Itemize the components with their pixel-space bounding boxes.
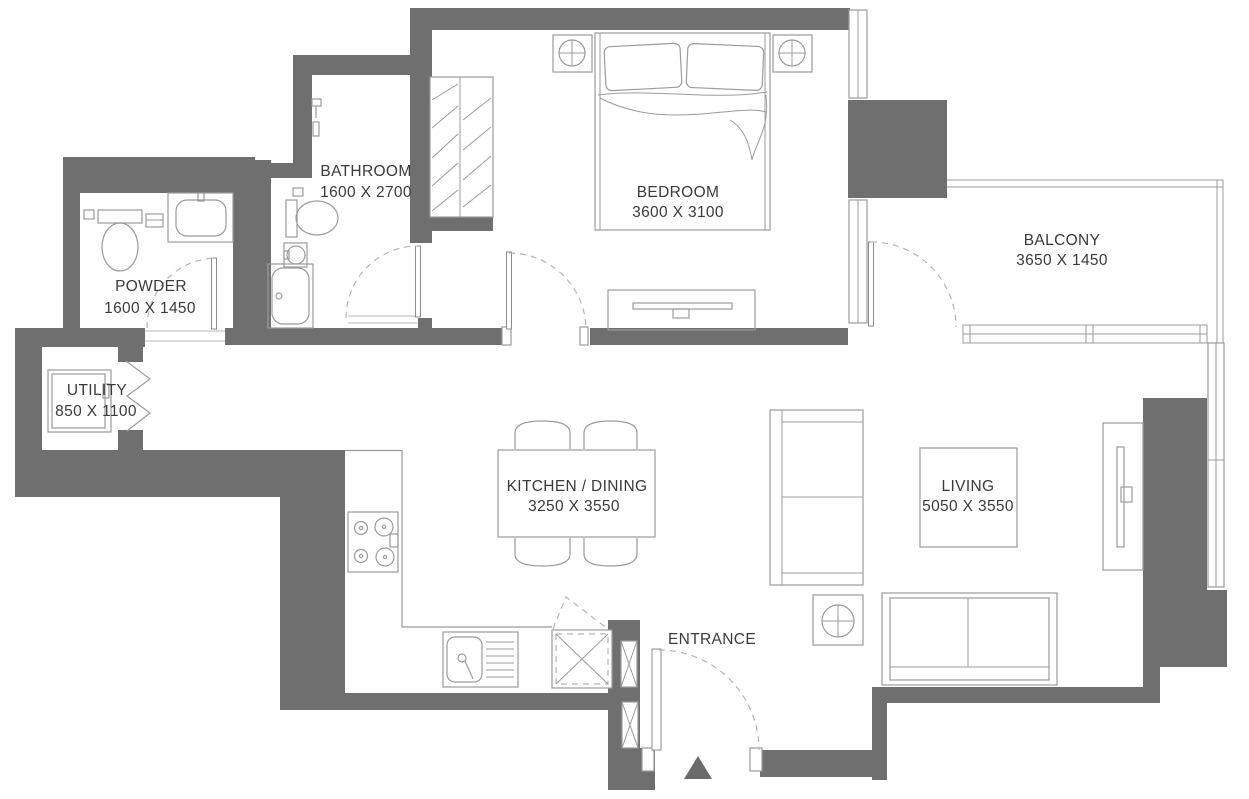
window-living-east [1208,343,1224,587]
utility-bifold-door [126,361,150,431]
utility-dimensions: 850 X 1100 [55,403,137,420]
balcony-door [869,242,957,327]
entrance-marker-icon [684,756,712,779]
entrance-label: ENTRANCE [668,631,756,648]
shaft-box-lower [622,702,638,748]
balcony-dimensions: 3650 X 1450 [1016,252,1108,269]
sofa-bottom [882,593,1057,685]
powder-wall-accessory [84,210,94,219]
bedroom-label: BEDROOM [637,184,720,201]
living-tv-unit [1103,423,1143,570]
living-label: LIVING [942,478,995,495]
bathroom-sink [284,243,307,267]
bathroom-door-threshold [348,313,418,325]
powder-vanity-sink [168,193,233,242]
shaft-box-upper [621,641,637,687]
powder-accessory-box [146,214,163,227]
window-bedroom-top-right [849,10,867,98]
entrance-jamb-left [642,748,654,771]
living-room-furniture [770,410,1143,685]
bedroom-door-jamb-right [580,327,588,345]
powder-room-fixtures [84,193,233,271]
nightstand-right [773,35,812,72]
utility-appliance [48,370,111,432]
bathtub [268,264,313,328]
shower-fittings [312,99,321,136]
kitchen-sink [443,632,518,687]
nightstand-left [553,35,592,72]
balcony-label: BALCONY [1024,232,1101,249]
wardrobe [430,77,493,217]
utility-label: UTILITY [67,382,127,399]
living-dimensions: 5050 X 3550 [922,498,1014,515]
bathroom-dimensions: 1600 X 2700 [320,184,412,201]
sofa-left [770,410,863,585]
bedroom-dimensions: 3600 X 3100 [632,204,724,221]
kitchen [345,421,655,688]
appliance-closet [552,597,612,688]
window-bedroom-balcony [849,200,867,323]
bathroom-door [346,246,421,318]
bedroom-door-jamb-left [502,327,511,345]
bathroom-label: BATHROOM [320,163,411,180]
powder-door-threshold [145,328,225,344]
bedroom-door [507,252,587,330]
kitchen-dining-dimensions: 3250 X 3550 [528,498,620,515]
entrance-jamb-right [750,748,762,771]
bedroom-furniture [430,33,812,330]
kitchen-dining-label: KITCHEN / DINING [507,478,648,495]
entrance-door [652,649,759,750]
side-table-lamp [813,595,863,645]
floor-plan: BATHROOM 1600 X 2700 BEDROOM 3600 X 3100… [0,0,1249,799]
bedroom-dresser-tv [608,290,755,330]
powder-label: POWDER [115,278,187,295]
powder-toilet [98,210,142,271]
powder-dimensions: 1600 X 1450 [104,300,196,317]
stove-cooktop [348,512,398,572]
